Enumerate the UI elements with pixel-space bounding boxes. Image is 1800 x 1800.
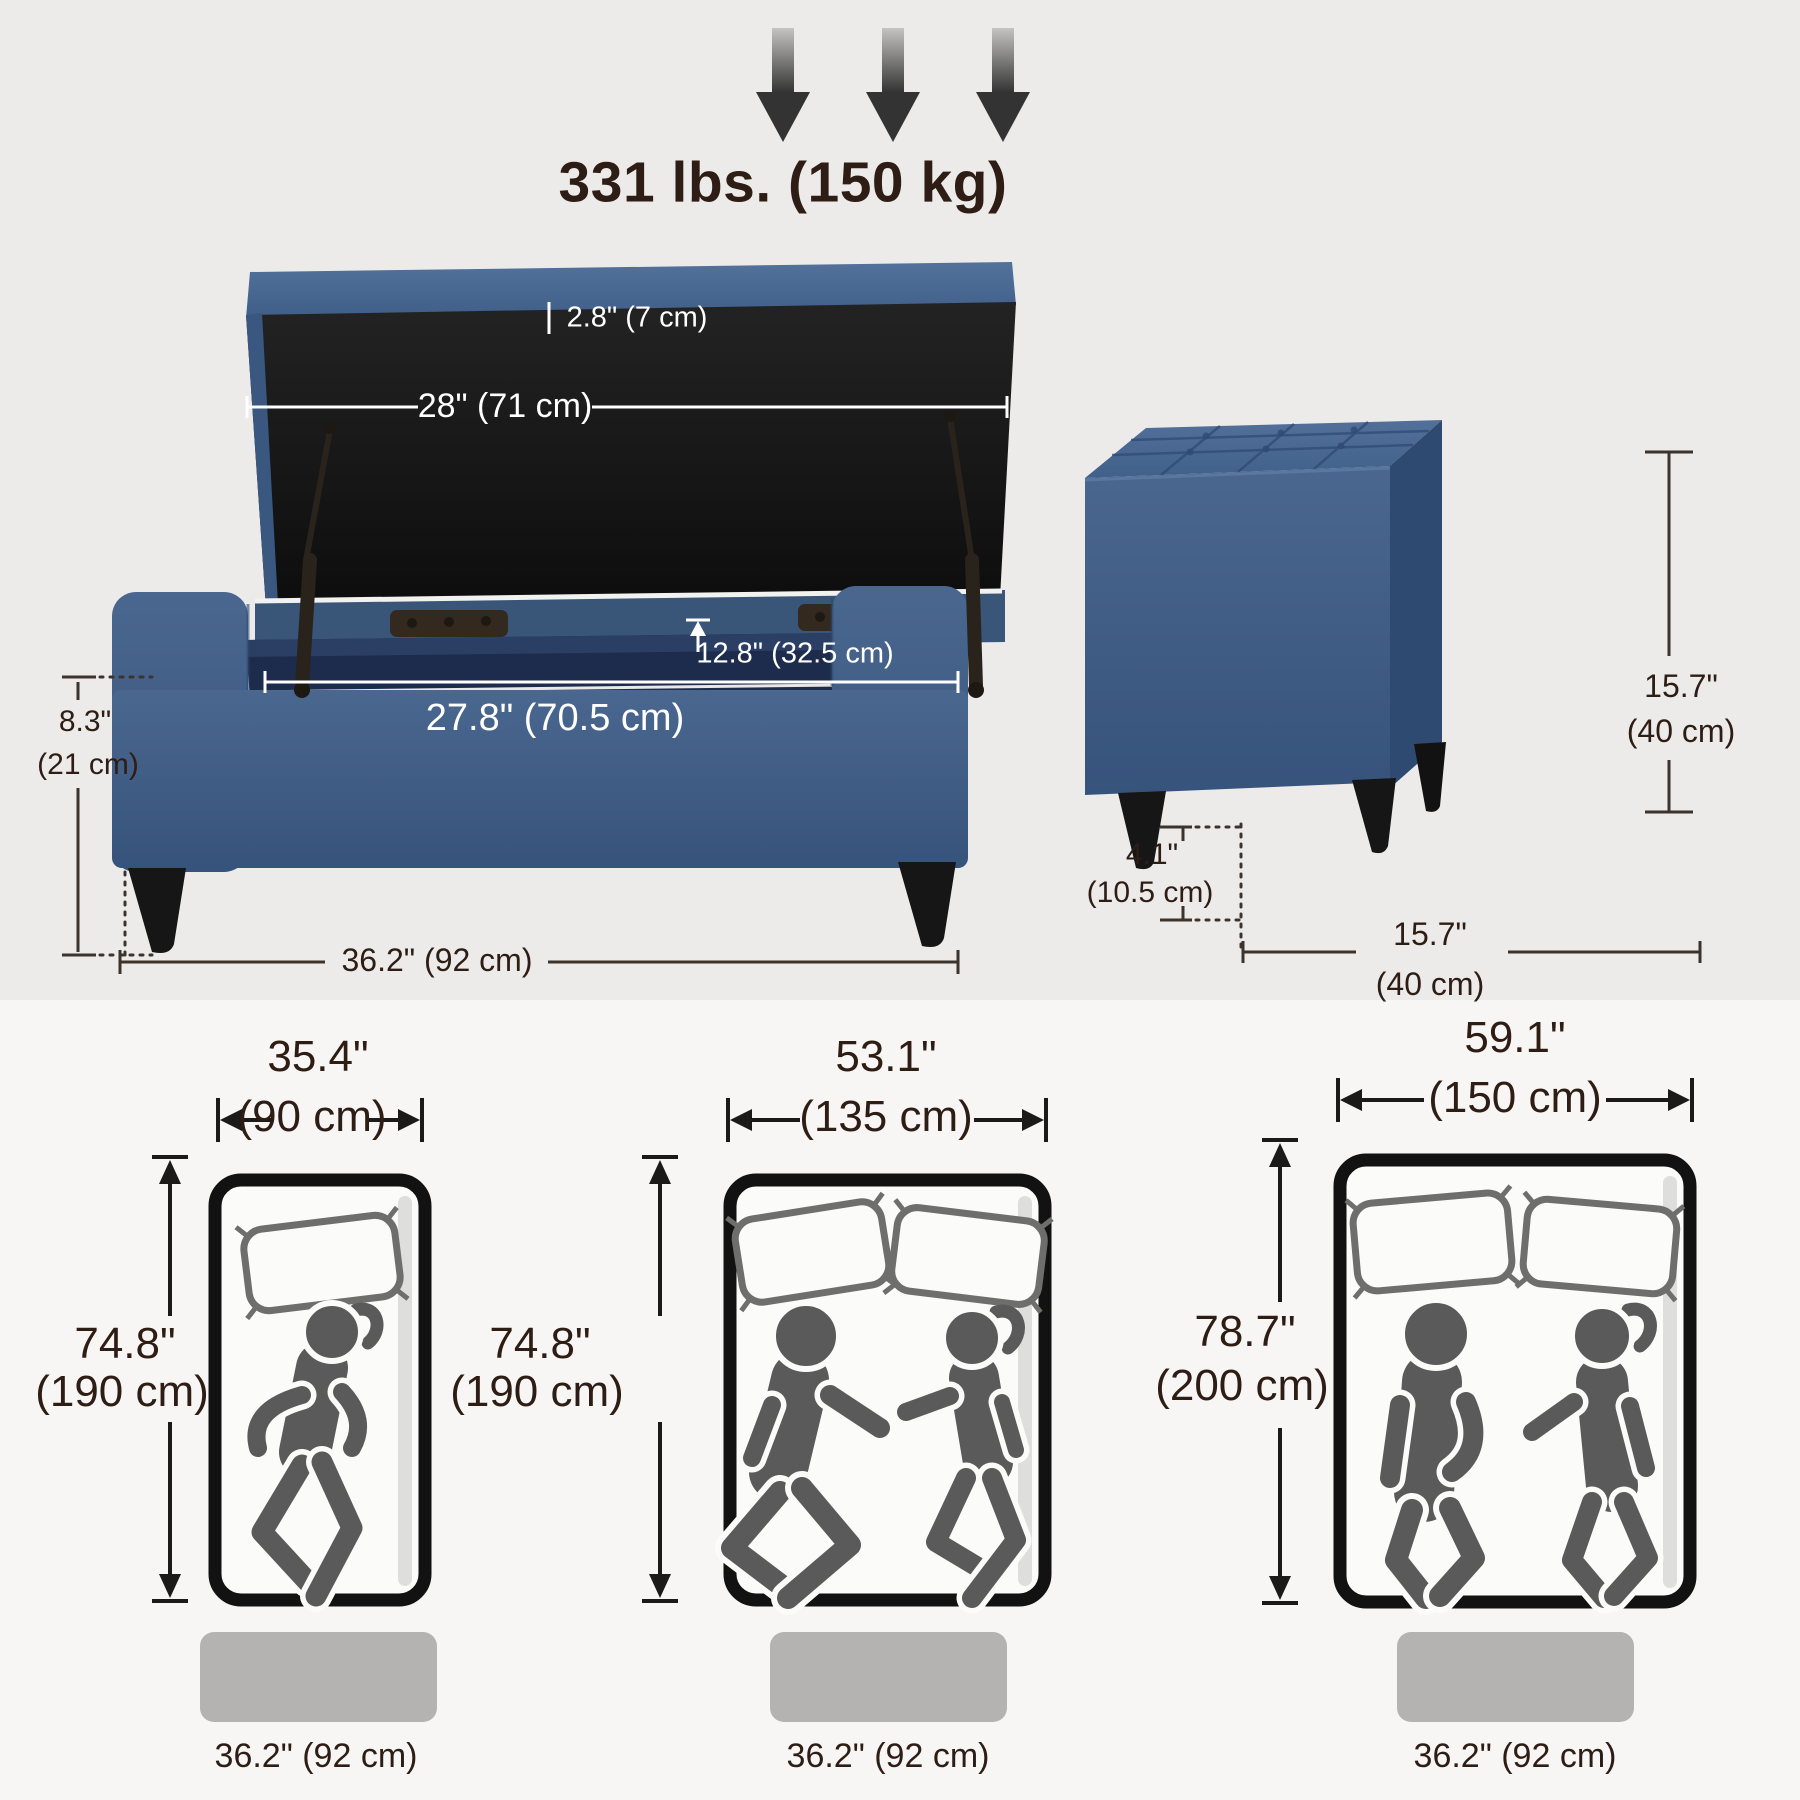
dim-interior-width: 27.8" (70.5 cm) [426,699,685,737]
pillow-icon [1516,1192,1684,1301]
mattress-figure-double [727,1180,1053,1722]
dim-side-height-in: 15.7" [1644,670,1718,702]
mattress3-length-cm: (200 cm) [1155,1364,1329,1408]
mattress1-width-in: 35.4" [267,1035,368,1079]
ottoman-footprint-swatch [200,1632,437,1722]
dim-opening-depth: 12.8" (32.5 cm) [696,640,893,669]
dim-seat-height-cm: (21 cm) [37,750,139,780]
mattress-figure-single [200,1180,437,1722]
mattress1-length-cm: (190 cm) [35,1370,209,1414]
ottoman-footprint-swatch [770,1632,1007,1722]
dim-leg-height-cm: (10.5 cm) [1087,878,1214,908]
dim-seat-height-in: 8.3" [59,707,111,737]
pillow-icon [1346,1186,1519,1298]
ottoman-footprint-swatch [1397,1632,1634,1722]
dim-side-depth-in: 15.7" [1393,918,1467,950]
dim-side-height-cm: (40 cm) [1627,715,1735,747]
mattress2-base-width: 36.2" (92 cm) [787,1739,990,1773]
dim-overall-width: 36.2" (92 cm) [342,944,533,976]
dim-leg-height-in: 4.1" [1126,840,1178,870]
dim-side-depth-cm: (40 cm) [1376,968,1484,1000]
mattress3-width-in: 59.1" [1464,1016,1565,1060]
mattress2-length-in: 74.8" [489,1322,590,1366]
mattress1-width-cm: (90 cm) [237,1095,386,1139]
mattress1-length-in: 74.8" [74,1322,175,1366]
dim-lid-width: 28" (71 cm) [418,389,593,423]
weight-arrows-icon [756,28,1030,142]
mattress2-width-cm: (135 cm) [799,1095,973,1139]
mattress-figure-queen [1340,1160,1690,1722]
mattress2-length-cm: (190 cm) [450,1370,624,1414]
mattress3-base-width: 36.2" (92 cm) [1414,1739,1617,1773]
mattress3-length-in: 78.7" [1194,1310,1295,1354]
diagram-artwork [0,0,1800,1800]
dim-lid-thickness: 2.8" (7 cm) [567,304,708,333]
product-dimension-diagram: 331 lbs. (150 kg) 2.8" (7 cm) 28" (71 cm… [0,0,1800,1800]
ottoman-side-view-illustration [1085,420,1446,869]
max-load-label: 331 lbs. (150 kg) [559,155,1008,212]
mattress1-base-width: 36.2" (92 cm) [215,1739,418,1773]
mattress2-width-in: 53.1" [835,1035,936,1079]
mattress3-width-cm: (150 cm) [1428,1076,1602,1120]
ottoman-front-view-illustration [112,262,1016,953]
